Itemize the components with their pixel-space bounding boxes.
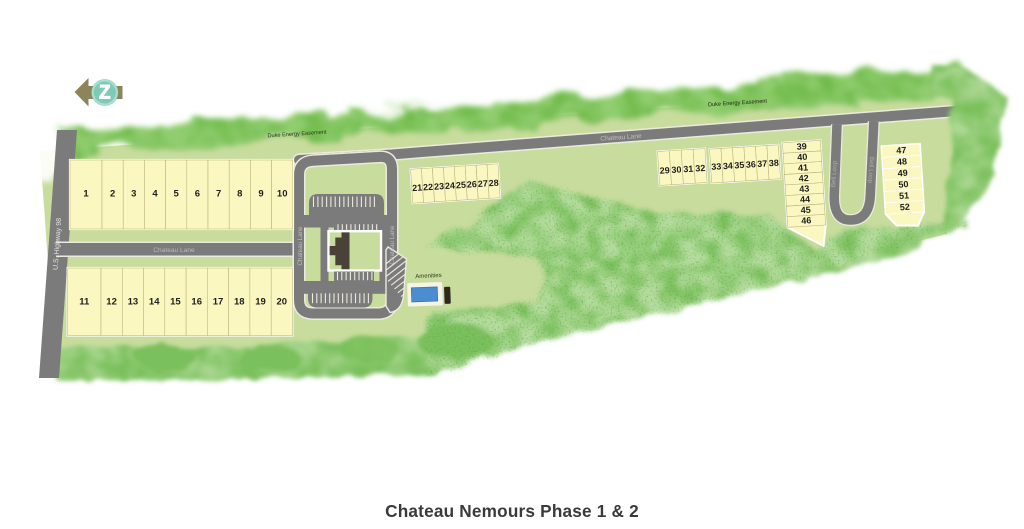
svg-text:48: 48 bbox=[897, 156, 908, 167]
svg-text:Chateau Lane: Chateau Lane bbox=[153, 247, 195, 254]
svg-text:18: 18 bbox=[234, 296, 245, 307]
svg-text:10: 10 bbox=[277, 189, 288, 200]
svg-text:30: 30 bbox=[671, 164, 682, 175]
svg-text:32: 32 bbox=[695, 163, 706, 174]
svg-text:38: 38 bbox=[768, 158, 779, 169]
svg-text:12: 12 bbox=[106, 296, 117, 307]
svg-text:42: 42 bbox=[798, 173, 809, 184]
svg-text:24: 24 bbox=[445, 180, 456, 191]
svg-text:27: 27 bbox=[477, 178, 488, 189]
svg-text:21: 21 bbox=[412, 182, 423, 193]
svg-text:39: 39 bbox=[796, 141, 807, 152]
svg-text:47: 47 bbox=[896, 145, 907, 156]
svg-text:3: 3 bbox=[131, 189, 136, 200]
svg-text:23: 23 bbox=[434, 181, 445, 192]
svg-text:8: 8 bbox=[237, 189, 242, 200]
svg-text:35: 35 bbox=[734, 160, 745, 171]
svg-text:33: 33 bbox=[711, 161, 722, 172]
svg-text:40: 40 bbox=[797, 152, 808, 163]
svg-text:44: 44 bbox=[800, 194, 811, 205]
svg-text:17: 17 bbox=[213, 296, 224, 307]
svg-text:41: 41 bbox=[798, 162, 809, 173]
svg-text:Chateau Lane: Chateau Lane bbox=[389, 225, 396, 264]
svg-text:6: 6 bbox=[195, 189, 200, 200]
svg-text:43: 43 bbox=[799, 183, 810, 194]
svg-text:16: 16 bbox=[191, 296, 202, 307]
svg-text:45: 45 bbox=[800, 205, 811, 216]
svg-text:51: 51 bbox=[899, 190, 910, 201]
svg-text:4: 4 bbox=[152, 189, 158, 200]
svg-text:13: 13 bbox=[128, 296, 139, 307]
svg-text:Chateau Lane: Chateau Lane bbox=[297, 226, 304, 265]
svg-text:20: 20 bbox=[277, 296, 288, 307]
svg-text:2: 2 bbox=[110, 189, 115, 200]
svg-text:15: 15 bbox=[170, 296, 181, 307]
svg-text:5: 5 bbox=[174, 189, 180, 200]
svg-text:28: 28 bbox=[488, 178, 499, 189]
svg-text:46: 46 bbox=[801, 215, 812, 226]
svg-text:7: 7 bbox=[216, 189, 221, 200]
svg-text:31: 31 bbox=[683, 164, 694, 175]
svg-text:50: 50 bbox=[898, 179, 909, 190]
svg-text:26: 26 bbox=[467, 179, 478, 190]
svg-text:9: 9 bbox=[258, 189, 263, 200]
svg-text:29: 29 bbox=[659, 165, 670, 176]
svg-text:22: 22 bbox=[423, 182, 434, 193]
svg-text:19: 19 bbox=[255, 296, 266, 307]
svg-text:14: 14 bbox=[149, 296, 160, 307]
svg-text:11: 11 bbox=[79, 296, 90, 307]
svg-text:Z: Z bbox=[99, 83, 111, 104]
svg-text:36: 36 bbox=[746, 159, 757, 170]
svg-text:1: 1 bbox=[83, 189, 89, 200]
svg-text:34: 34 bbox=[723, 161, 734, 172]
svg-text:37: 37 bbox=[757, 158, 768, 169]
svg-text:52: 52 bbox=[900, 202, 911, 213]
svg-text:49: 49 bbox=[897, 168, 908, 179]
svg-text:25: 25 bbox=[456, 180, 467, 191]
